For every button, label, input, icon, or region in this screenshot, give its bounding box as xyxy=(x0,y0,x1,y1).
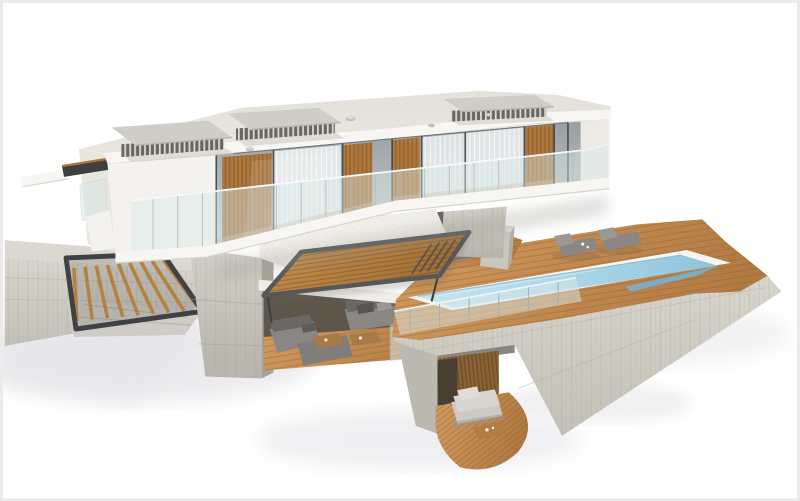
render-canvas xyxy=(0,0,800,501)
roof-vent xyxy=(428,124,435,128)
left-slab xyxy=(21,169,68,187)
roof-vent xyxy=(486,113,493,117)
deck-drink xyxy=(581,242,584,245)
table-item xyxy=(324,338,327,341)
roof-vent xyxy=(347,115,355,119)
villa-render xyxy=(3,3,797,498)
table-item xyxy=(359,336,362,339)
patio-table-item xyxy=(485,428,488,431)
roof-vent xyxy=(247,146,253,149)
right-end xyxy=(581,119,610,181)
patio-table-item xyxy=(492,427,495,430)
deck-drink xyxy=(586,246,589,249)
